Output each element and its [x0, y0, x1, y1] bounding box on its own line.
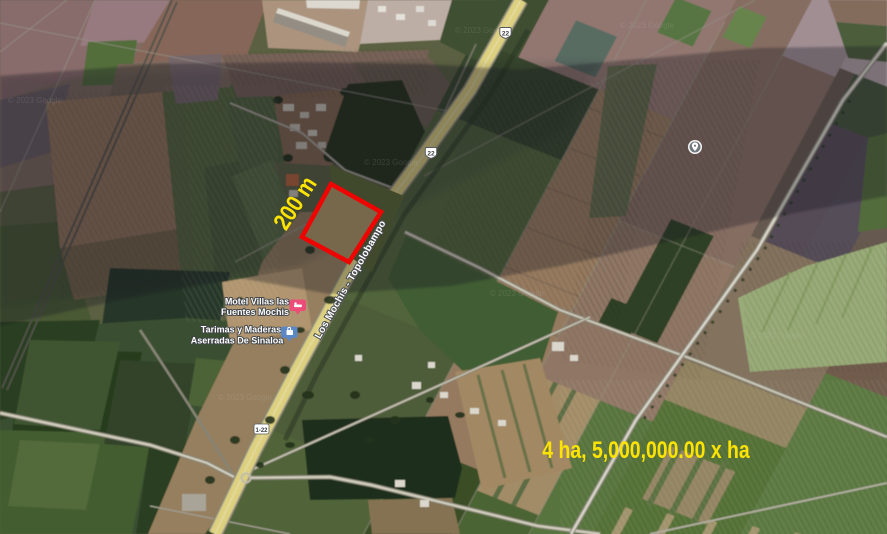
svg-text:Fuentes Mochis: Fuentes Mochis — [221, 307, 289, 317]
svg-text:Motel Villas las: Motel Villas las — [225, 297, 289, 307]
svg-text:Tarimas y Maderas: Tarimas y Maderas — [201, 325, 281, 335]
svg-text:22: 22 — [502, 31, 510, 38]
svg-text:1-22: 1-22 — [255, 428, 268, 434]
svg-text:© 2023 Google: © 2023 Google — [364, 158, 418, 167]
svg-text:© 2023 Google: © 2023 Google — [490, 289, 544, 298]
svg-text:© 2023 Google: © 2023 Google — [750, 331, 804, 340]
svg-text:© 2023 Google: © 2023 Google — [218, 393, 272, 402]
svg-text:© 2023 Google: © 2023 Google — [620, 21, 674, 30]
svg-text:22: 22 — [427, 151, 435, 158]
svg-text:© 2023 Google: © 2023 Google — [8, 96, 62, 105]
svg-text:4 ha, 5,000,000.00 x ha: 4 ha, 5,000,000.00 x ha — [542, 436, 750, 463]
svg-text:Aserradas De Sinaloa: Aserradas De Sinaloa — [191, 336, 285, 346]
